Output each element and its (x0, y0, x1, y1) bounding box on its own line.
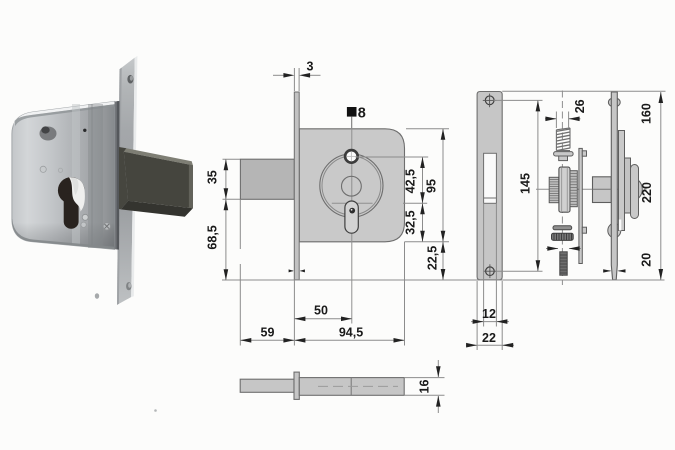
svg-text:50: 50 (314, 304, 328, 318)
svg-text:68,5: 68,5 (205, 225, 219, 249)
svg-text:22: 22 (482, 331, 496, 345)
svg-text:16: 16 (418, 380, 432, 394)
svg-text:35: 35 (205, 170, 219, 184)
svg-text:20: 20 (640, 253, 654, 267)
svg-text:8: 8 (358, 105, 366, 121)
svg-text:3: 3 (307, 60, 314, 74)
svg-text:145: 145 (519, 173, 533, 194)
svg-text:220: 220 (640, 182, 654, 203)
svg-text:26: 26 (573, 99, 587, 113)
svg-text:22,5: 22,5 (426, 246, 440, 270)
svg-text:42,5: 42,5 (404, 169, 418, 193)
svg-text:160: 160 (640, 103, 654, 124)
svg-text:12: 12 (482, 307, 496, 321)
svg-text:95: 95 (425, 179, 439, 193)
svg-text:32,5: 32,5 (404, 210, 418, 234)
svg-text:59: 59 (261, 326, 275, 340)
svg-text:94,5: 94,5 (339, 326, 363, 340)
